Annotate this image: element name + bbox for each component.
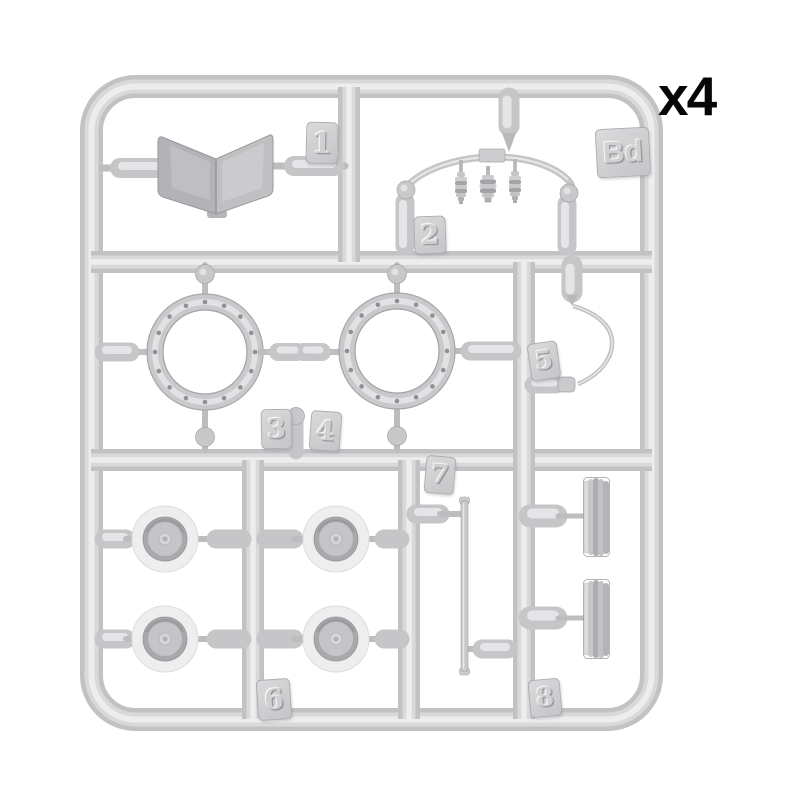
sprue-id-tag: Bd xyxy=(595,127,651,179)
part-7-rod xyxy=(416,497,508,675)
part-3-hatch-ring xyxy=(102,265,263,451)
part-8-brackets xyxy=(530,478,610,659)
part-tag-3: 3 xyxy=(261,409,293,450)
center-nozzle xyxy=(480,166,497,203)
part-tag-5: 5 xyxy=(527,340,562,382)
part-4-hatch-ring xyxy=(260,265,518,453)
quantity-label: x4 xyxy=(658,64,715,128)
part-tag-1: 1 xyxy=(305,122,338,165)
product-photo-sprue: 1 2 3 4 5 6 7 8 Bd x4 xyxy=(0,0,800,800)
part-tag-4: 4 xyxy=(309,410,343,452)
part-tag-7: 7 xyxy=(423,455,456,495)
part-tag-2: 2 xyxy=(413,215,446,254)
part-tag-6: 6 xyxy=(256,678,293,721)
part-tag-8: 8 xyxy=(527,678,562,719)
